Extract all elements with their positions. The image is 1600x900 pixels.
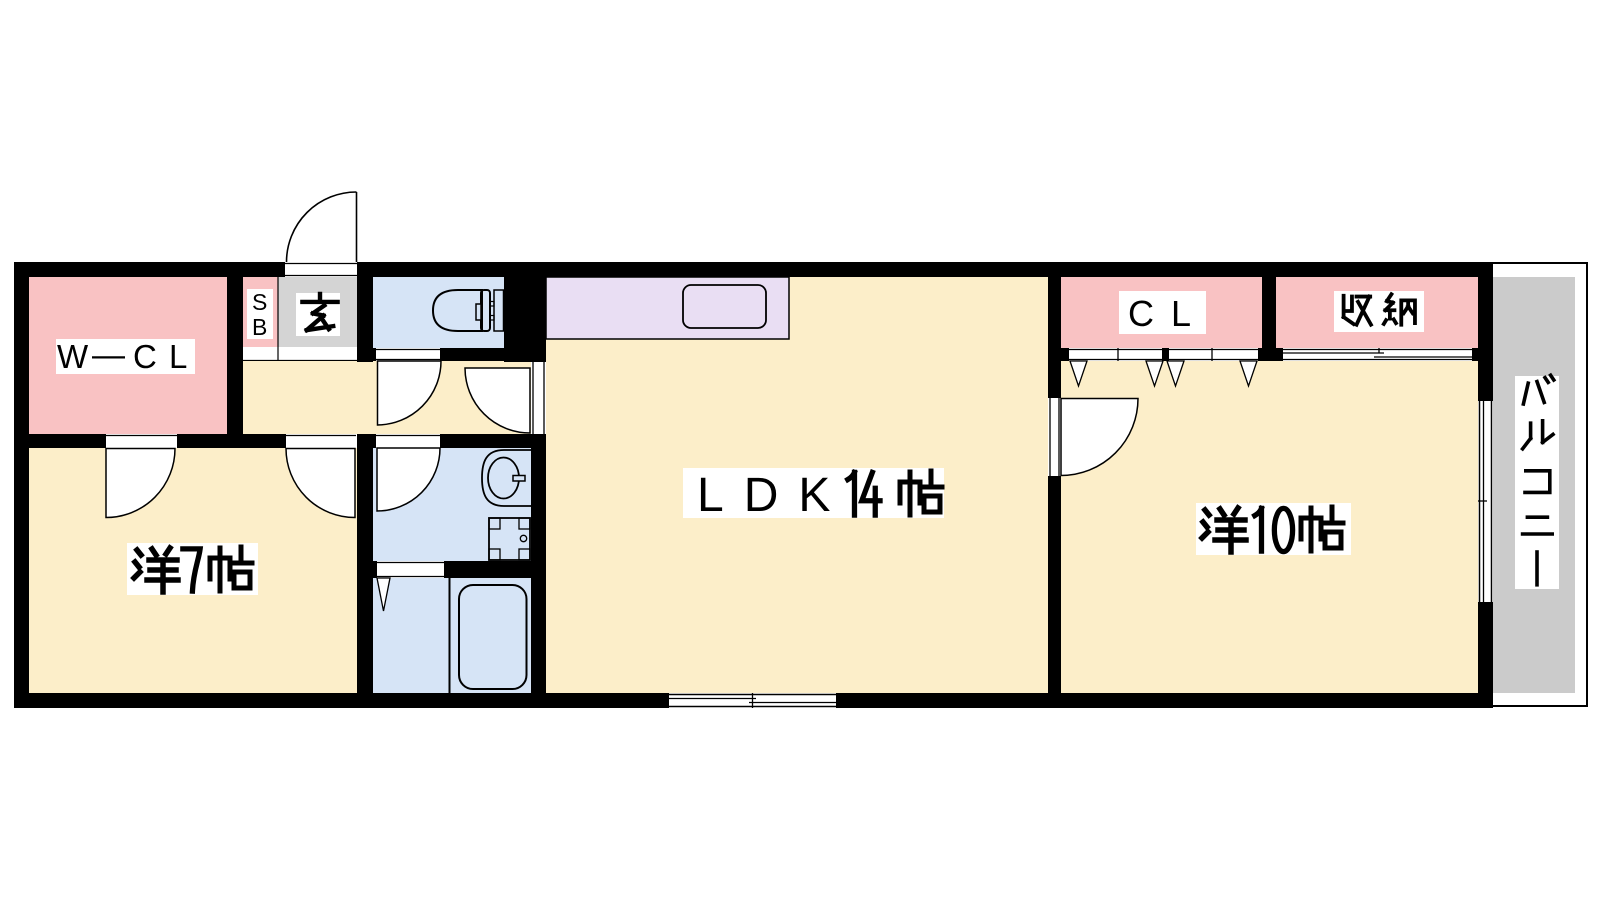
svg-text:C: C bbox=[133, 338, 157, 375]
svg-text:—: — bbox=[92, 336, 125, 373]
svg-text:L: L bbox=[169, 338, 187, 375]
svg-text:LDK: LDK bbox=[697, 469, 850, 522]
svg-text:B: B bbox=[252, 314, 267, 340]
svg-text:W: W bbox=[57, 338, 89, 375]
svg-text:L: L bbox=[1171, 293, 1191, 334]
svg-text:S: S bbox=[252, 289, 267, 315]
svg-text:C: C bbox=[1128, 293, 1154, 334]
